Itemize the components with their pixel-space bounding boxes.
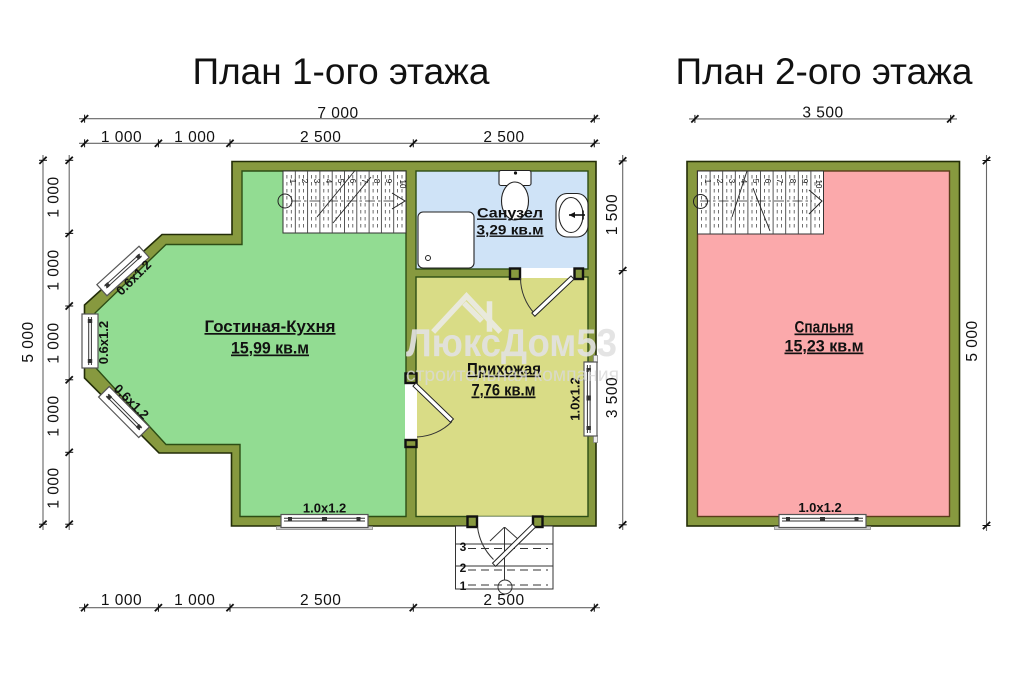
- svg-text:2: 2: [715, 179, 724, 184]
- svg-text:6: 6: [763, 179, 772, 184]
- svg-text:9: 9: [800, 179, 809, 184]
- svg-text:0.6x1.2: 0.6x1.2: [96, 321, 111, 364]
- svg-text:3,29 кв.м: 3,29 кв.м: [477, 222, 544, 238]
- svg-text:6: 6: [348, 179, 357, 184]
- svg-text:1.0x1.2: 1.0x1.2: [303, 501, 346, 516]
- svg-text:7: 7: [775, 179, 784, 184]
- svg-text:3: 3: [460, 540, 467, 554]
- svg-text:План 2-ого этажа: План 2-ого этажа: [676, 51, 973, 92]
- svg-text:строительная компания: строительная компания: [406, 364, 619, 386]
- svg-text:5: 5: [751, 179, 760, 184]
- svg-text:Санузел: Санузел: [477, 205, 543, 221]
- svg-text:15,99 кв.м: 15,99 кв.м: [231, 339, 309, 358]
- svg-text:10: 10: [398, 180, 407, 189]
- svg-text:Спальня: Спальня: [795, 318, 854, 337]
- svg-text:1 000: 1 000: [174, 592, 215, 609]
- svg-text:15,23 кв.м: 15,23 кв.м: [785, 337, 864, 356]
- svg-text:8: 8: [372, 179, 381, 184]
- svg-text:1: 1: [703, 179, 712, 184]
- svg-text:3 500: 3 500: [802, 105, 843, 122]
- svg-text:1 000: 1 000: [46, 467, 63, 508]
- svg-text:9: 9: [384, 179, 393, 184]
- svg-text:2 500: 2 500: [300, 129, 341, 146]
- svg-text:2: 2: [460, 561, 467, 575]
- svg-text:1: 1: [288, 179, 297, 184]
- svg-text:4: 4: [324, 179, 333, 184]
- svg-text:1 000: 1 000: [46, 395, 63, 436]
- svg-text:1: 1: [460, 579, 467, 593]
- svg-text:5 000: 5 000: [964, 320, 981, 361]
- svg-text:1 500: 1 500: [604, 194, 621, 235]
- svg-text:1 000: 1 000: [46, 176, 63, 217]
- svg-text:5: 5: [336, 179, 345, 184]
- svg-text:План 1-ого этажа: План 1-ого этажа: [193, 51, 490, 92]
- svg-text:3 500: 3 500: [604, 377, 621, 418]
- svg-text:5 000: 5 000: [20, 321, 37, 362]
- svg-text:ЛюксДом53: ЛюксДом53: [406, 322, 617, 365]
- svg-text:2 500: 2 500: [300, 592, 341, 609]
- svg-text:1 000: 1 000: [46, 249, 63, 290]
- svg-text:10: 10: [814, 180, 823, 189]
- svg-text:1 000: 1 000: [101, 592, 142, 609]
- svg-text:2 500: 2 500: [483, 592, 524, 609]
- svg-text:7 000: 7 000: [317, 105, 358, 122]
- svg-text:1 000: 1 000: [46, 322, 63, 363]
- svg-text:2: 2: [300, 179, 309, 184]
- svg-text:1.0x1.2: 1.0x1.2: [798, 500, 841, 515]
- svg-text:1 000: 1 000: [101, 129, 142, 146]
- svg-text:1 000: 1 000: [174, 129, 215, 146]
- svg-text:8: 8: [788, 179, 797, 184]
- svg-text:2 500: 2 500: [483, 129, 524, 146]
- svg-text:3: 3: [727, 179, 736, 184]
- svg-text:3: 3: [312, 179, 321, 184]
- svg-text:Гостиная-Кухня: Гостиная-Кухня: [205, 317, 336, 336]
